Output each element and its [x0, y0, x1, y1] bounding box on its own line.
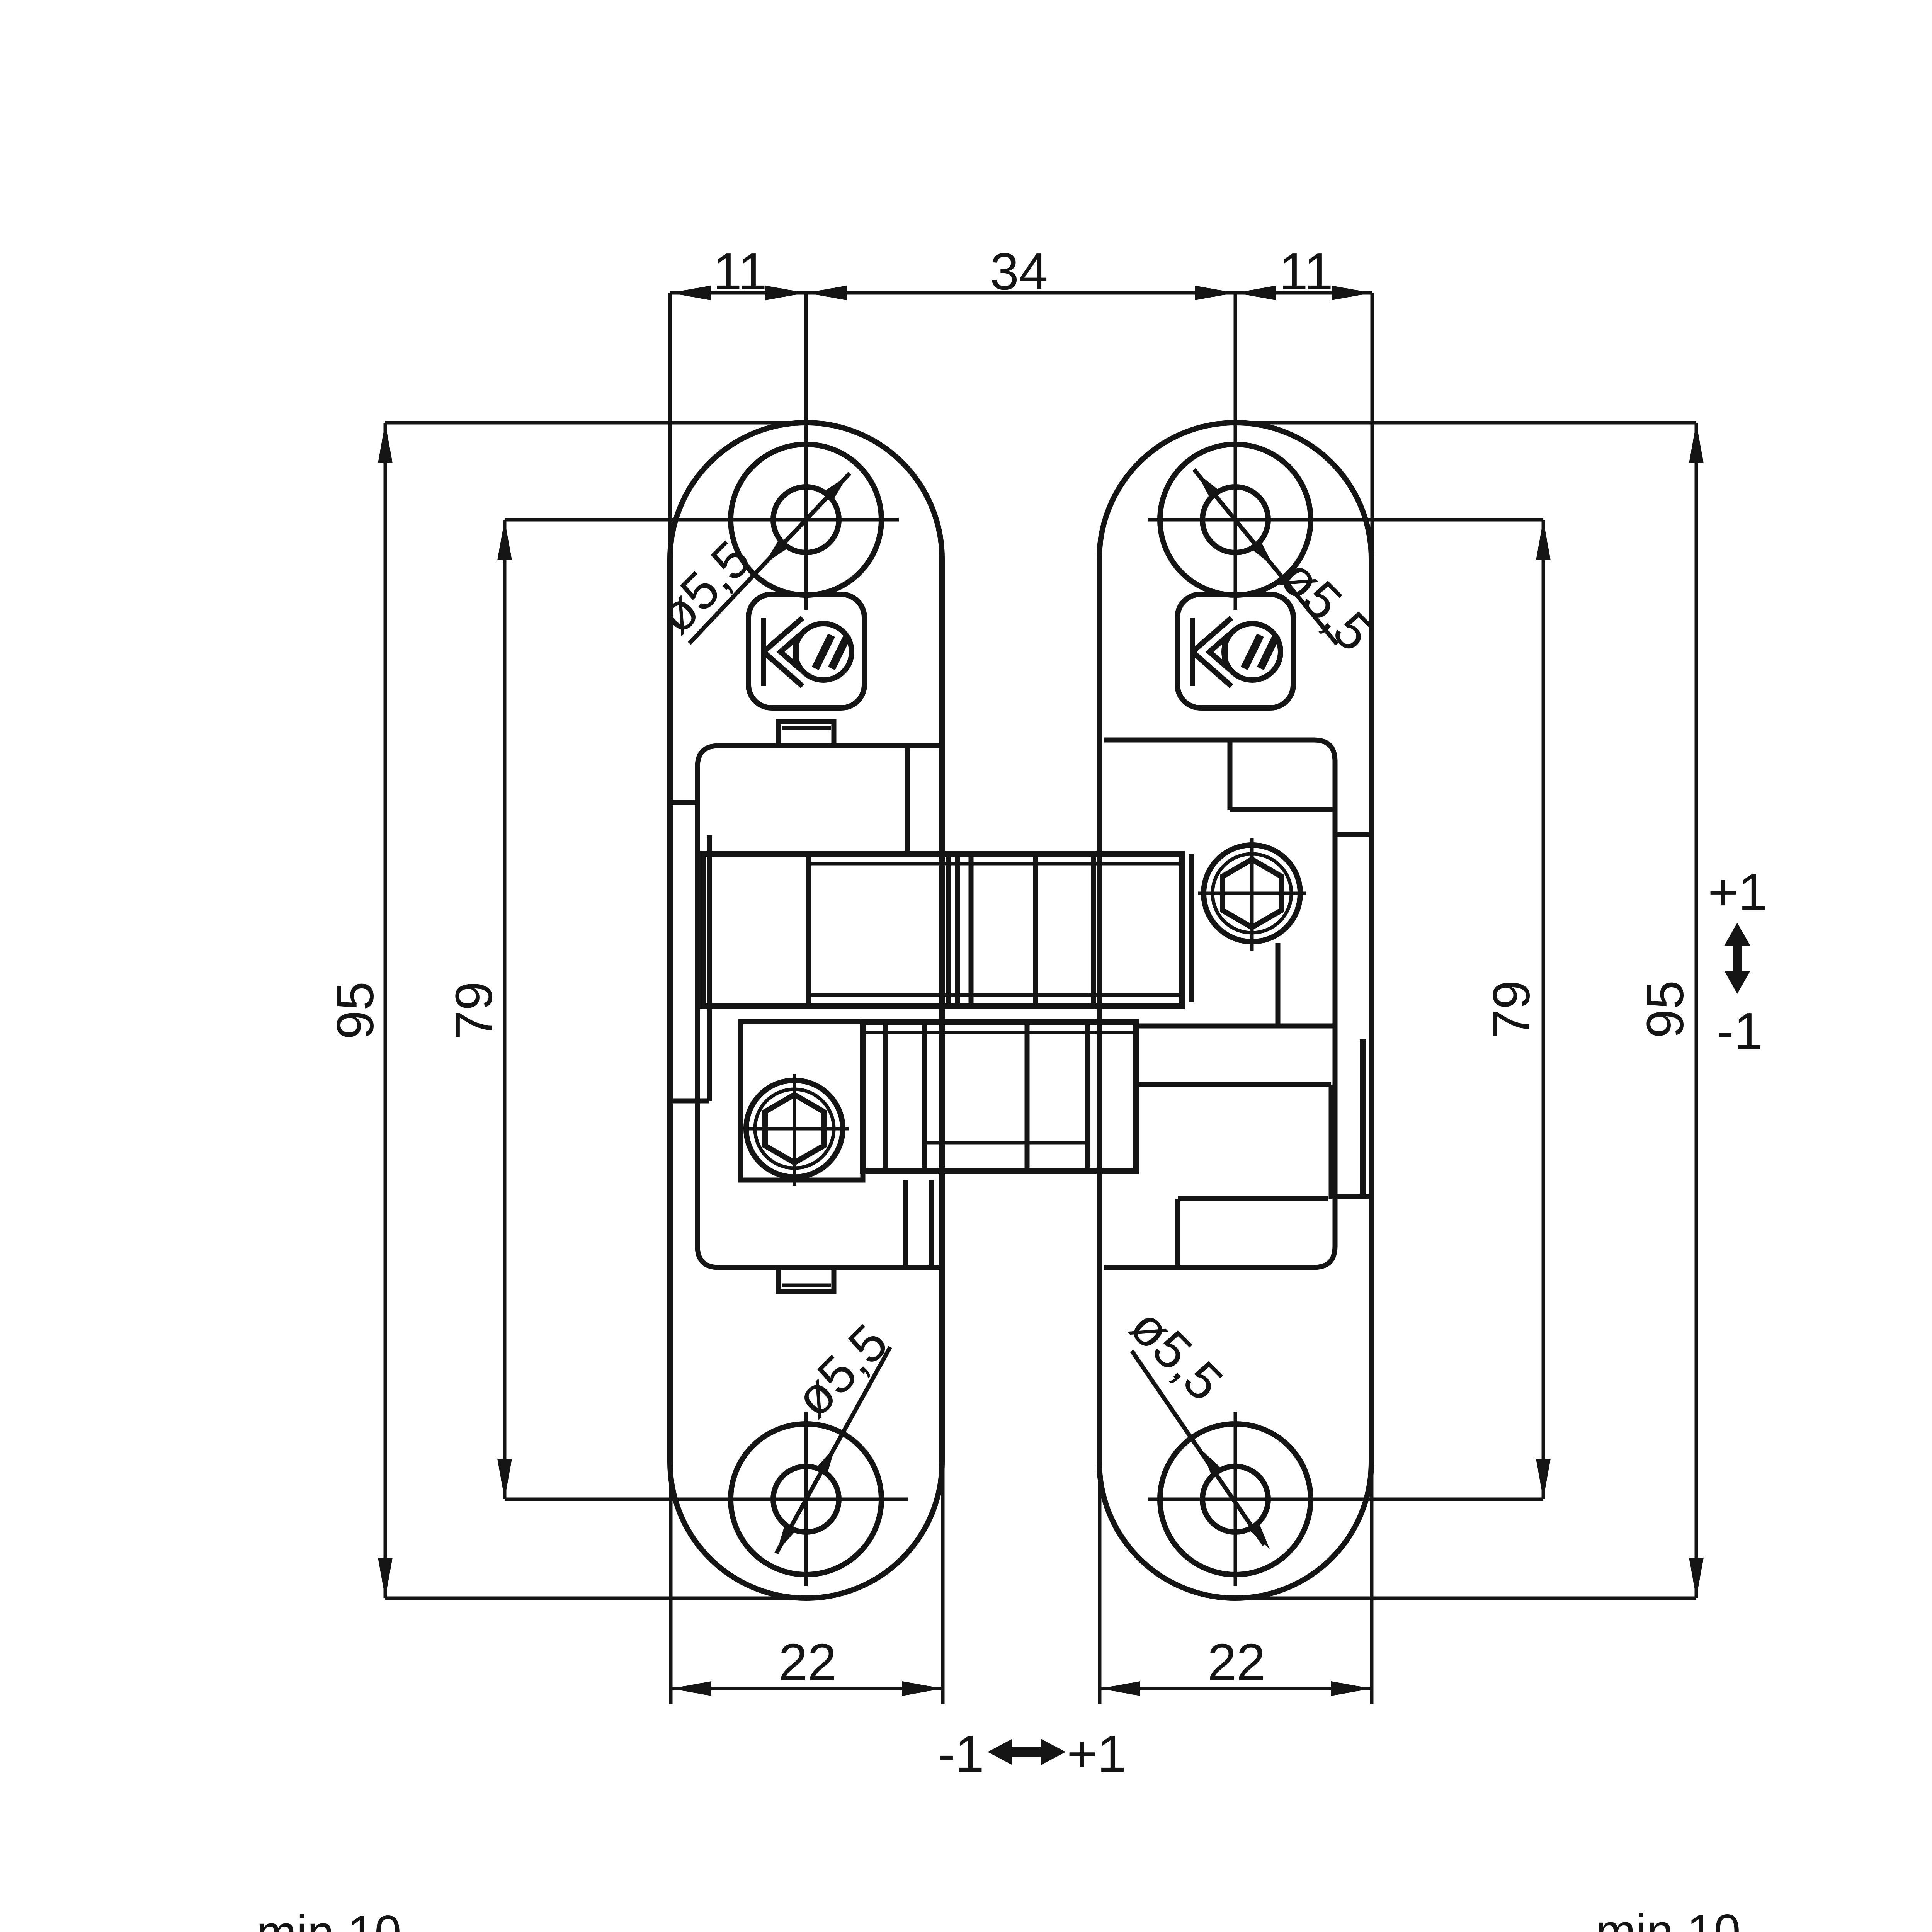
svg-text:34: 34 [990, 242, 1048, 301]
svg-text:-1: -1 [938, 1725, 984, 1783]
svg-text:95: 95 [1636, 980, 1694, 1038]
svg-text:79: 79 [445, 981, 503, 1039]
svg-text:79: 79 [1482, 980, 1541, 1038]
svg-text:min.10: min.10 [1595, 1905, 1740, 1932]
svg-text:22: 22 [779, 1633, 837, 1691]
svg-text:11: 11 [1279, 242, 1333, 301]
svg-text:22: 22 [1207, 1633, 1265, 1691]
svg-text:11: 11 [713, 242, 767, 301]
svg-text:95: 95 [326, 981, 384, 1039]
svg-text:+1: +1 [1708, 863, 1767, 921]
svg-text:-1: -1 [1716, 1002, 1763, 1060]
svg-text:+1: +1 [1067, 1725, 1126, 1783]
svg-text:min.10: min.10 [256, 1906, 401, 1932]
